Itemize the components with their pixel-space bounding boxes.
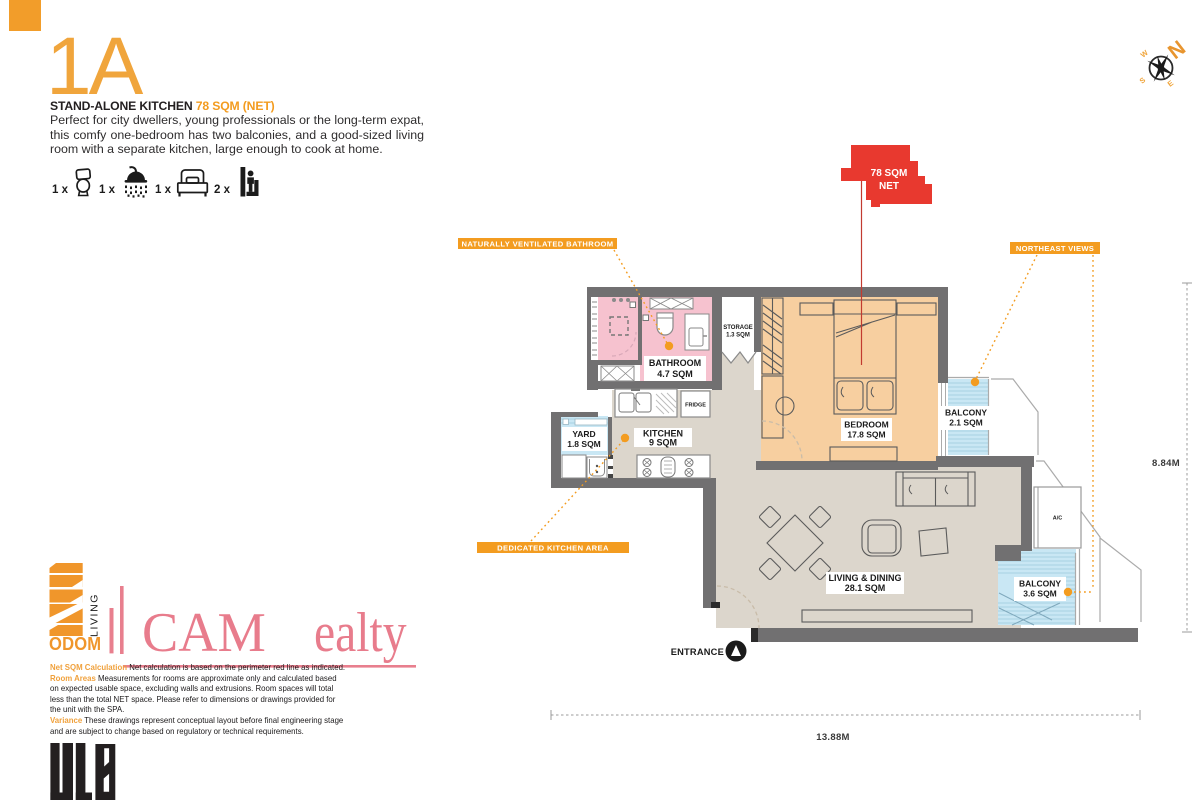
- svg-text:8.84M: 8.84M: [1152, 458, 1180, 469]
- svg-text:3.6 SQM: 3.6 SQM: [1023, 589, 1057, 599]
- svg-text:28.1 SQM: 28.1 SQM: [845, 583, 886, 593]
- svg-text:NET: NET: [879, 181, 899, 192]
- svg-text:LIVING & DINING: LIVING & DINING: [828, 573, 901, 583]
- svg-text:BALCONY: BALCONY: [945, 408, 987, 418]
- svg-text:1.8 SQM: 1.8 SQM: [567, 439, 601, 449]
- svg-text:NORTHEAST VIEWS: NORTHEAST VIEWS: [1016, 244, 1094, 253]
- svg-text:78 SQM: 78 SQM: [871, 168, 908, 179]
- svg-text:NATURALLY VENTILATED BATHROOM: NATURALLY VENTILATED BATHROOM: [461, 240, 613, 249]
- svg-text:9 SQM: 9 SQM: [649, 438, 677, 448]
- svg-text:DEDICATED KITCHEN AREA: DEDICATED KITCHEN AREA: [497, 544, 609, 553]
- svg-text:BEDROOM: BEDROOM: [844, 420, 888, 430]
- svg-text:2 x: 2 x: [214, 184, 231, 196]
- svg-text:4.7 SQM: 4.7 SQM: [657, 369, 693, 379]
- svg-text:ENTRANCE: ENTRANCE: [671, 647, 724, 657]
- svg-text:E: E: [1166, 78, 1175, 88]
- svg-text:YARD: YARD: [572, 429, 595, 439]
- svg-text:1 x: 1 x: [99, 184, 116, 196]
- svg-text:STORAGE: STORAGE: [723, 325, 753, 331]
- svg-text:13.88M: 13.88M: [816, 732, 850, 743]
- svg-text:17.8 SQM: 17.8 SQM: [847, 430, 885, 440]
- svg-text:BALCONY: BALCONY: [1019, 579, 1061, 589]
- svg-text:BATHROOM: BATHROOM: [649, 358, 701, 368]
- svg-text:A/C: A/C: [1053, 516, 1063, 522]
- svg-text:W: W: [1139, 48, 1151, 60]
- svg-text:2.1 SQM: 2.1 SQM: [949, 418, 983, 428]
- svg-text:S: S: [1138, 75, 1147, 85]
- svg-text:FRIDGE: FRIDGE: [685, 403, 706, 409]
- svg-text:1.3 SQM: 1.3 SQM: [726, 333, 750, 339]
- svg-text:1 x: 1 x: [52, 184, 69, 196]
- svg-text:1 x: 1 x: [155, 184, 172, 196]
- svg-text:LIVING: LIVING: [89, 593, 101, 637]
